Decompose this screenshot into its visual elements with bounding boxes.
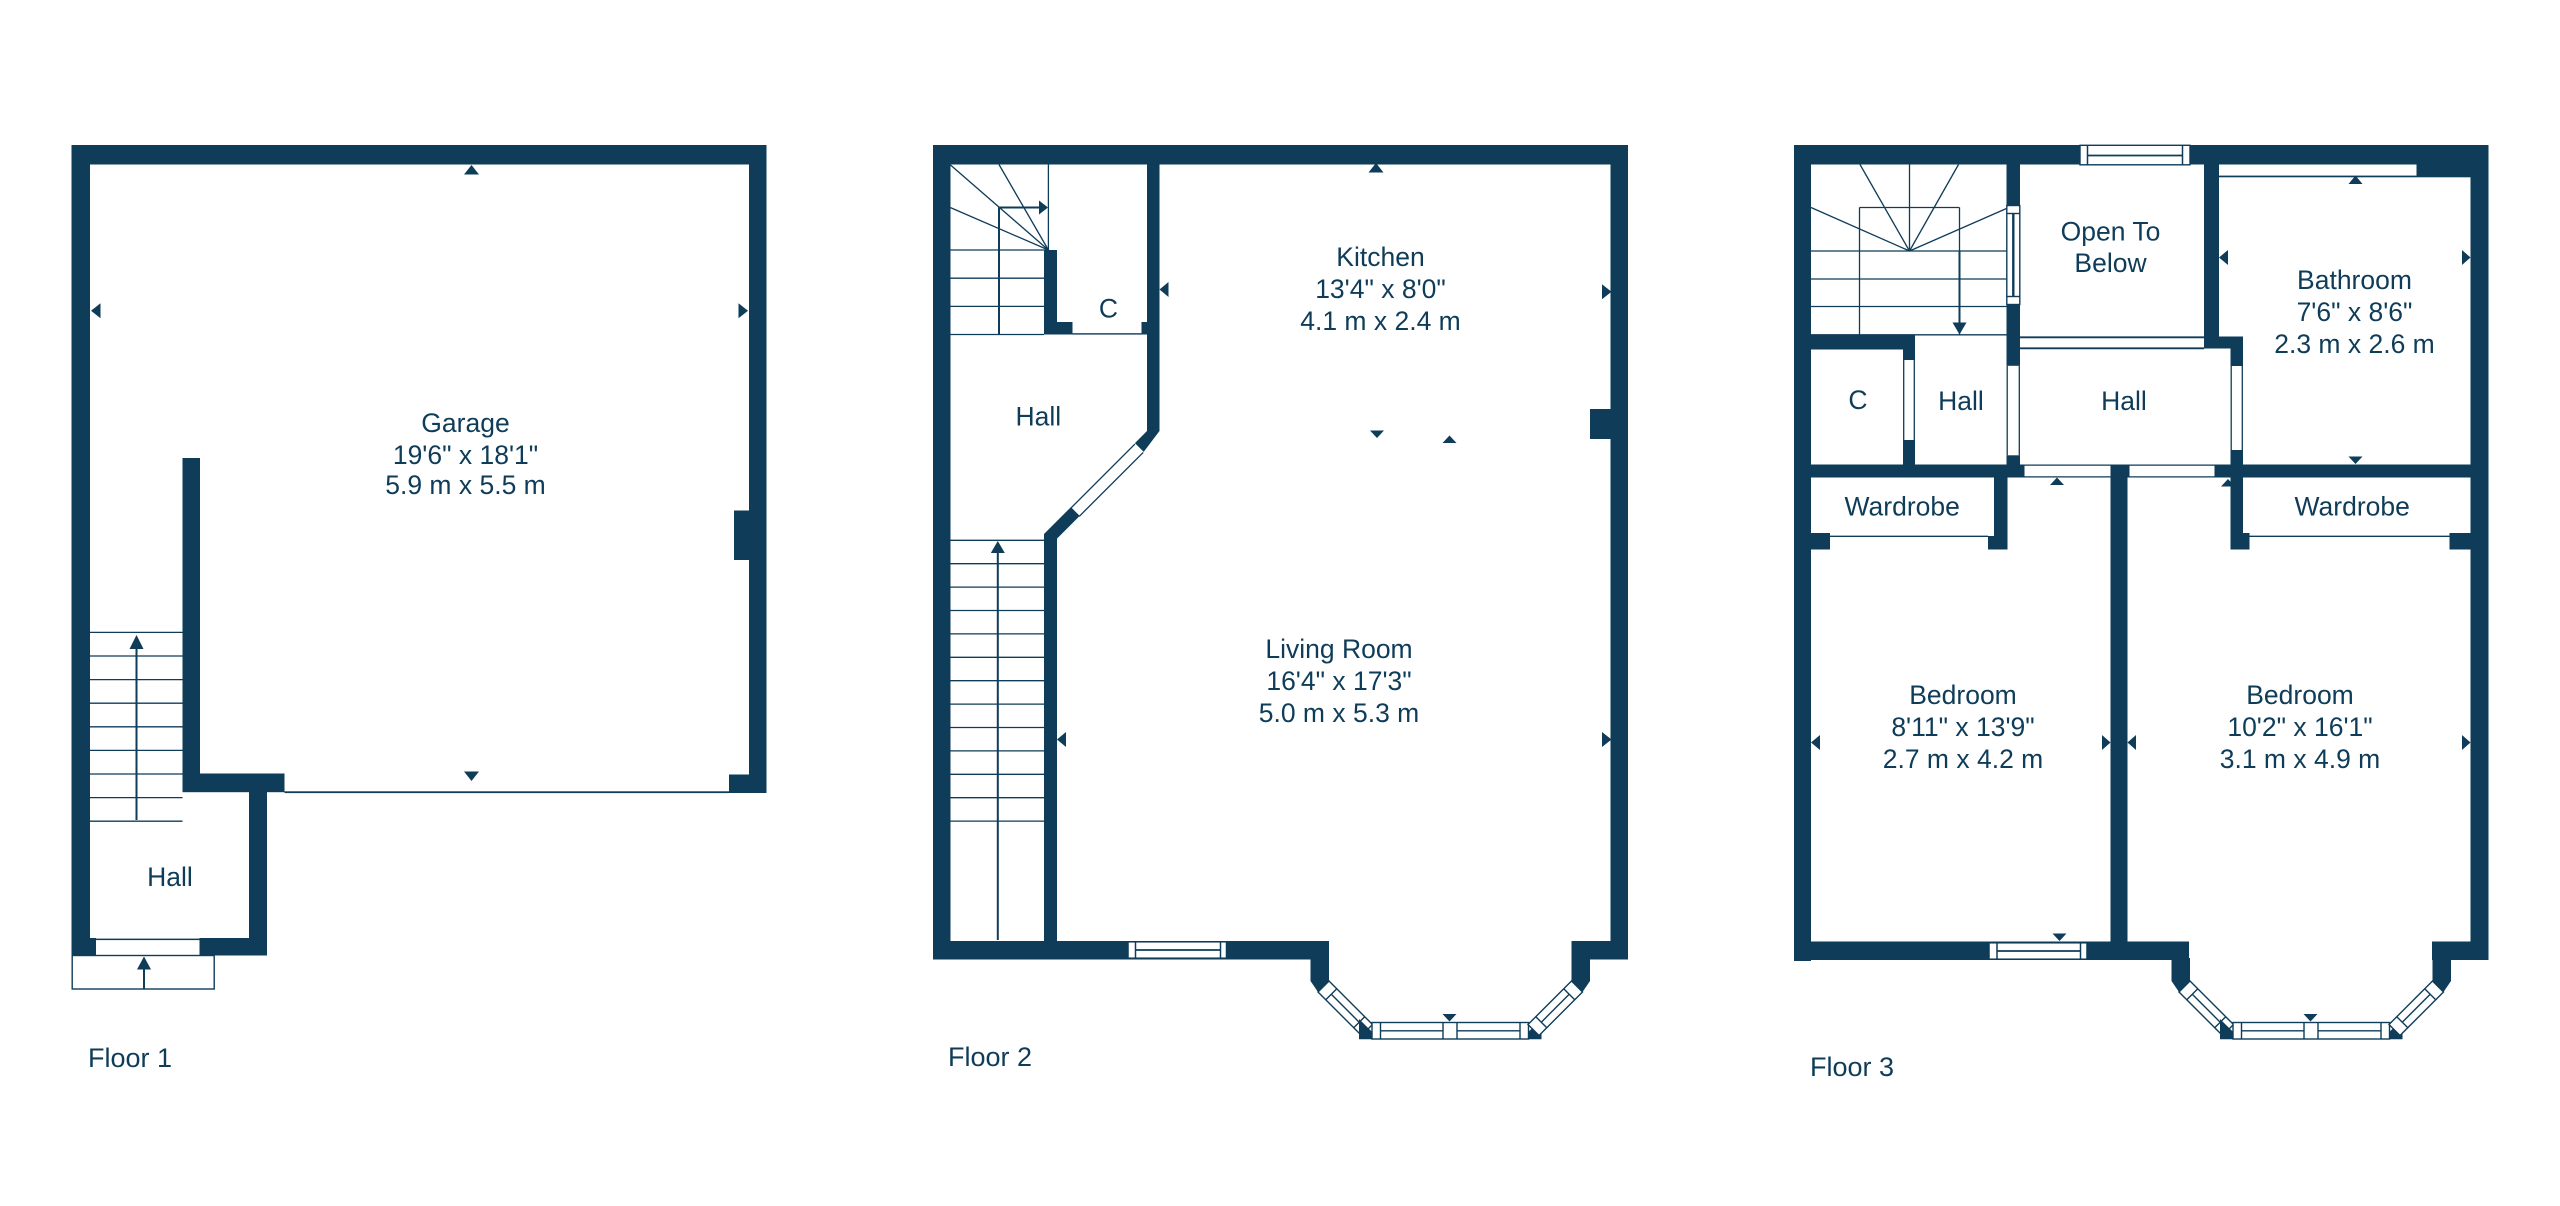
svg-text:Living Room: Living Room	[1265, 634, 1412, 664]
svg-text:16'4" x 17'3": 16'4" x 17'3"	[1266, 666, 1411, 696]
svg-text:8'11" x 13'9": 8'11" x 13'9"	[1891, 712, 2034, 742]
svg-text:Floor 3: Floor 3	[1810, 1052, 1894, 1082]
svg-text:4.1 m x 2.4 m: 4.1 m x 2.4 m	[1300, 306, 1461, 336]
svg-text:Floor 1: Floor 1	[88, 1043, 172, 1073]
svg-text:5.0 m x 5.3 m: 5.0 m x 5.3 m	[1259, 698, 1420, 728]
svg-text:2.3 m x 2.6 m: 2.3 m x 2.6 m	[2274, 329, 2435, 359]
svg-text:19'6" x 18'1": 19'6" x 18'1"	[393, 440, 538, 470]
svg-text:10'2" x 16'1": 10'2" x 16'1"	[2227, 712, 2372, 742]
svg-text:7'6" x 8'6": 7'6" x 8'6"	[2297, 297, 2413, 327]
svg-text:Wardrobe: Wardrobe	[2295, 492, 2410, 522]
svg-text:Floor 2: Floor 2	[948, 1042, 1032, 1072]
svg-text:C: C	[1848, 385, 1867, 415]
svg-text:Hall: Hall	[1015, 401, 1061, 431]
svg-text:5.9 m x 5.5 m: 5.9 m x 5.5 m	[385, 470, 546, 500]
svg-text:Kitchen: Kitchen	[1336, 242, 1424, 272]
svg-text:Bathroom: Bathroom	[2297, 265, 2412, 295]
svg-text:Garage: Garage	[421, 408, 509, 438]
svg-text:Wardrobe: Wardrobe	[1845, 492, 1960, 522]
svg-text:3.1 m x 4.9 m: 3.1 m x 4.9 m	[2220, 744, 2381, 774]
svg-text:Open To: Open To	[2061, 217, 2161, 247]
svg-text:13'4" x 8'0": 13'4" x 8'0"	[1315, 274, 1446, 304]
svg-text:Bedroom: Bedroom	[2246, 680, 2354, 710]
svg-text:C: C	[1099, 294, 1118, 324]
svg-text:Hall: Hall	[1938, 386, 1984, 416]
svg-text:Hall: Hall	[2101, 386, 2147, 416]
svg-text:Below: Below	[2074, 248, 2147, 278]
svg-text:Hall: Hall	[147, 862, 193, 892]
svg-text:Bedroom: Bedroom	[1909, 680, 2017, 710]
svg-text:2.7 m x 4.2 m: 2.7 m x 4.2 m	[1883, 744, 2044, 774]
